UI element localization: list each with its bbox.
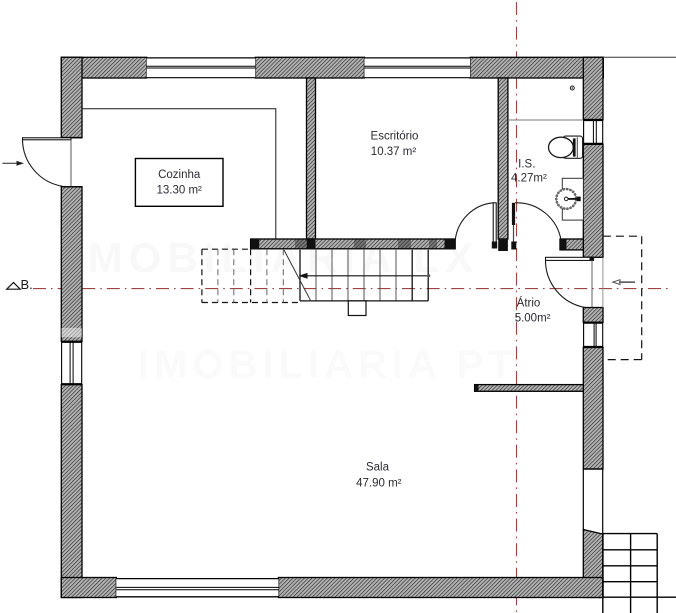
svg-text:47.90 m²: 47.90 m² (356, 478, 402, 490)
svg-text:10.37 m²: 10.37 m² (371, 146, 417, 158)
svg-text:I.S.: I.S. (518, 159, 535, 171)
svg-text:IMOBILIARIA PT: IMOBILIARIA PT (138, 343, 518, 387)
svg-text:4.27m²: 4.27m² (511, 173, 547, 185)
svg-text:Cozinha: Cozinha (158, 169, 201, 181)
svg-text:5.00m²: 5.00m² (515, 312, 551, 324)
svg-text:B.: B. (21, 277, 33, 292)
svg-text:Sala: Sala (366, 461, 390, 473)
svg-text:Átrio: Átrio (517, 296, 541, 309)
svg-text:Escritório: Escritório (371, 131, 419, 143)
svg-text:13.30 m²: 13.30 m² (157, 184, 203, 196)
